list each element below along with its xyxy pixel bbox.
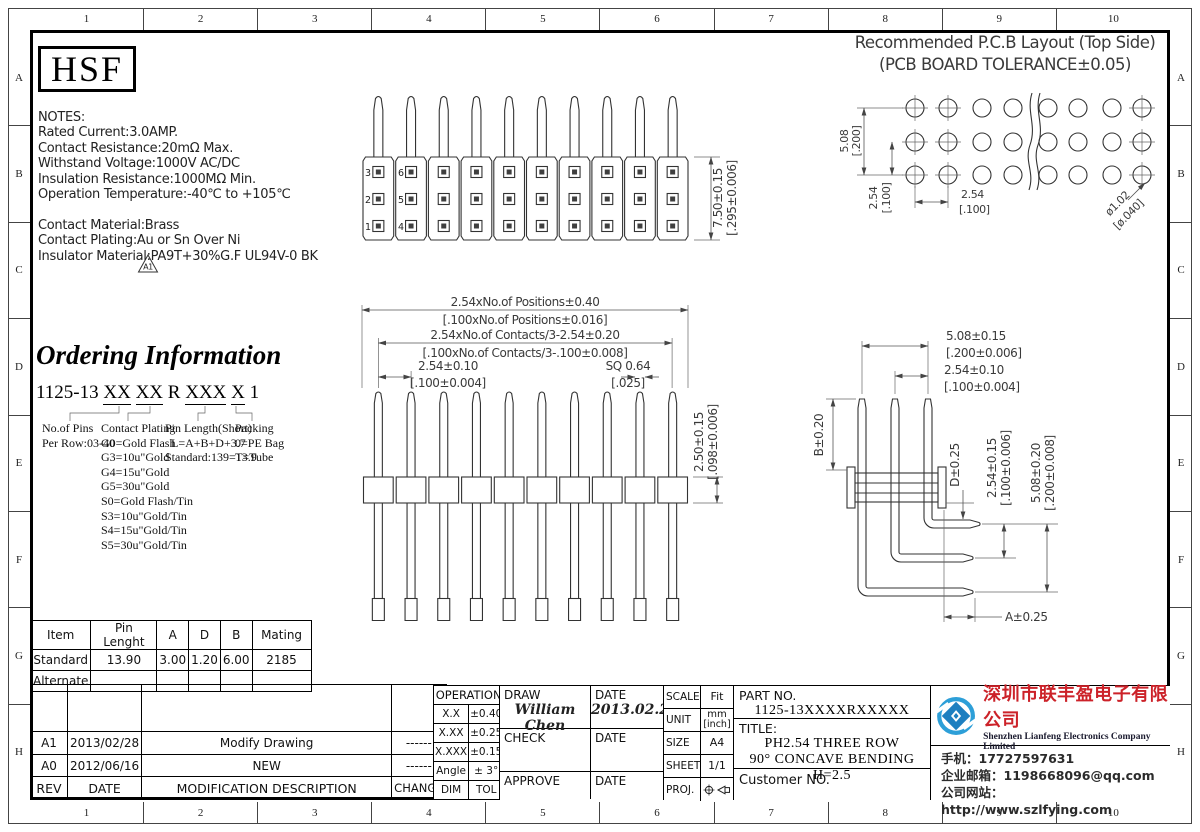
col-header: Mating [252,621,311,650]
tol-dim: X.XXX [434,743,469,762]
ordering-title: Ordering Information [36,340,281,371]
cell: 13.90 [91,650,157,671]
ruler-letter: F [1170,512,1192,608]
col-header: MODIFICATION DESCRIPTION [142,777,392,800]
ruler-num: 3 [258,8,372,30]
ruler-num: 7 [715,8,829,30]
cell [68,685,142,732]
company-name-cn: 深圳市联丰盈电子有限公司 [983,680,1170,732]
scale-label: SCALE [664,686,701,708]
tol-dim: X.XX [434,724,469,743]
part-no-label: PART NO. [734,686,930,703]
draw-date-cell: DATE 2013.02.28 [591,686,663,728]
scale-value: Fit [701,686,733,708]
drawing-sheet: 1 2 3 4 5 6 7 8 9 10 1 2 3 4 5 6 7 8 9 1… [0,0,1200,832]
ruler-num: 4 [372,802,486,824]
params-table: Item Pin Lenght A D B Mating Standard 13… [30,620,312,692]
draw-cell: DRAW William Chen [500,686,591,728]
part-no-value: 1125-13XXXXRXXXXX [734,703,930,719]
ruler-num: 2 [144,8,258,30]
ruler-top: 1 2 3 4 5 6 7 8 9 10 [30,8,1170,30]
phone-value: 17727597631 [979,751,1075,766]
ruler-letter: C [8,223,30,319]
ord-col-line: S5=30u"Gold/Tin [101,538,193,553]
table-row: X.XXX ±0.15 [434,743,504,762]
ruler-num: 7 [715,802,829,824]
cell [142,685,392,732]
scale-row: SCALE Fit [664,686,733,709]
size-row: SIZE A4 [664,732,733,755]
projection-symbol-icon [701,778,733,801]
ruler-num: 3 [258,802,372,824]
pn-seg: 1125-13 [36,382,103,403]
title-line1: PH2.54 THREE ROW [734,736,930,752]
table-row: REV DATE MODIFICATION DESCRIPTION CHANGE [31,777,447,800]
approve-label: APPROVE [500,772,590,788]
rev-desc: NEW [142,755,392,777]
ruler-letter: H [8,705,30,800]
note-line: Insulator Material:PA9T+30%G.F UL94V-0 B… [38,249,318,264]
ruler-num: 6 [600,8,714,30]
web-value: http://www.szlfying.com [941,802,1112,817]
ruler-num: 8 [829,8,943,30]
col-header: Item [31,621,91,650]
ruler-num: 9 [943,8,1057,30]
ruler-letter: B [8,126,30,222]
ordering-part-number: 1125-13 XX XX R XXX X 1 [36,382,259,404]
col-header: B [220,621,252,650]
cell: 2185 [252,650,311,671]
check-date-cell: DATE [591,729,663,771]
pn-seg: 1 [245,382,259,403]
ord-col-line: 0=PE Bag [235,436,284,451]
customer-section: Customer NO. [734,769,930,800]
rev-date: 2013/02/28 [68,732,142,755]
email-value: 1198668096@qq.com [1004,768,1155,783]
note-line: NOTES: [38,110,318,125]
company-website: 公司网站：http://www.szlfying.com [941,784,1170,818]
col-header: REV [31,777,68,800]
table-row: X.X ±0.40 [434,705,504,724]
rev-date: 2012/06/16 [68,755,142,777]
cell: Standard [31,650,91,671]
sheet-label: SHEET [664,755,701,777]
ruler-num: 8 [829,802,943,824]
tol-dim: X.X [434,705,469,724]
pn-seg: XX [103,382,130,405]
check-label: CHECK [500,729,590,745]
ruler-letter: A [1170,30,1192,126]
date-label: DATE [591,772,663,788]
check-cell: CHECK [500,729,591,771]
ruler-num: 1 [30,802,144,824]
ruler-letter: E [1170,416,1192,512]
col-header: Pin Lenght [91,621,157,650]
revision-table: A1 2013/02/28 Modify Drawing ------ A0 2… [30,684,447,800]
title-label: TITLE: [734,719,930,736]
ruler-letter: G [1170,608,1192,704]
meta-block: SCALE Fit UNIT mm [inch] SIZE A4 SHEET 1… [663,685,733,800]
signature-block: DRAW William Chen DATE 2013.02.28 CHECK … [499,685,663,800]
col-header: OPERATION [434,686,504,705]
ruler-left: A B C D E F G H [8,30,30,800]
ruler-right: A B C D E F G H [1170,30,1192,800]
tol-dim: Angle [434,762,469,781]
company-names: 深圳市联丰盈电子有限公司 Shenzhen Lianfeng Electroni… [983,680,1170,752]
table-row [31,685,447,732]
note-line: Operation Temperature:-40℃ to +105℃ [38,187,318,202]
cell: 3.00 [157,650,189,671]
draw-label: DRAW [500,686,590,702]
note-line: Insulation Resistance:1000MΩ Min. [38,172,318,187]
ruler-letter: E [8,416,30,512]
cell: 6.00 [220,650,252,671]
ruler-letter: A [8,30,30,126]
ruler-letter: F [8,512,30,608]
company-email: 企业邮箱：1198668096@qq.com [941,767,1170,784]
ruler-letter: H [1170,705,1192,800]
note-line [38,202,318,217]
ruler-num: 5 [486,802,600,824]
ruler-letter: C [1170,223,1192,319]
sheet-row: SHEET 1/1 [664,755,733,778]
ruler-letter: B [1170,126,1192,222]
ruler-num: 5 [486,8,600,30]
col-header: DATE [68,777,142,800]
note-line: Rated Current:3.0AMP. [38,125,318,140]
date-label: DATE [591,686,663,702]
unit-label: UNIT [664,709,701,731]
ruler-num: 6 [600,802,714,824]
ruler-num: 1 [30,8,144,30]
pn-seg: XX [136,382,163,405]
company-block: 深圳市联丰盈电子有限公司 Shenzhen Lianfeng Electroni… [930,685,1170,800]
proj-label: PROJ. [664,778,701,801]
table-row: Item Pin Lenght A D B Mating [31,621,312,650]
email-label: 企业邮箱： [941,768,1004,783]
ruler-letter: D [8,319,30,415]
col-header: D [189,621,221,650]
rev-id: A0 [31,755,68,777]
pn-seg [131,382,136,403]
ord-col-line: T=Tube [235,450,284,465]
ord-col-line: S3=10u"Gold/Tin [101,509,193,524]
phone-label: 手机： [941,751,979,766]
tolerance-table: OPERATION X.X ±0.40 X.XX ±0.25 X.XXX ±0.… [433,685,504,800]
ruler-letter: G [8,608,30,704]
hsf-logo: HSF [38,46,136,92]
ord-col-line: S4=15u"Gold/Tin [101,523,193,538]
table-row: Angle ± 3° [434,762,504,781]
unit-row: UNIT mm [inch] [664,709,733,732]
ruler-num: 4 [372,8,486,30]
company-logo [935,691,977,741]
company-contacts: 手机：17727597631 企业邮箱：1198668096@qq.com 公司… [931,746,1170,818]
pn-seg: X [231,382,245,405]
title-section: TITLE: PH2.54 THREE ROW 90° CONCAVE BEND… [734,719,930,769]
hsf-logo-text: HSF [51,48,123,90]
rev-desc: Modify Drawing [142,732,392,755]
ruler-num: 2 [144,802,258,824]
table-row: A1 2013/02/28 Modify Drawing ------ [31,732,447,755]
draw-date: 2013.02.28 [591,702,663,718]
approve-date-cell: DATE [591,772,663,799]
proj-row: PROJ. [664,778,733,801]
note-line: Contact Material:Brass [38,218,318,233]
ord-col-line: G5=30u"Gold [101,479,193,494]
ord-col-line: G4=15u"Gold [101,465,193,480]
notes-block: NOTES: Rated Current:3.0AMP. Contact Res… [38,110,318,264]
rev-id: A1 [31,732,68,755]
company-name-en: Shenzhen Lianfeng Electronics Company Li… [983,732,1170,752]
unit-inch: [inch] [703,720,730,730]
company-phone: 手机：17727597631 [941,750,1170,767]
ordering-col-packing: Packing 0=PE Bag T=Tube [235,421,284,465]
sign-row-check: CHECK DATE [500,729,663,772]
col-header: A [157,621,189,650]
ruler-letter: D [1170,319,1192,415]
part-block: PART NO. 1125-13XXXXRXXXXX TITLE: PH2.54… [733,685,930,800]
note-line: Withstand Voltage:1000V AC/DC [38,156,318,171]
ruler-num: 10 [1057,8,1170,30]
sign-row-draw: DRAW William Chen DATE 2013.02.28 [500,686,663,729]
size-value: A4 [701,732,733,754]
pn-seg: R [163,382,185,403]
sheet-value: 1/1 [701,755,733,777]
ord-col-header: Packing [235,421,284,436]
date-label: DATE [591,729,663,745]
table-row: OPERATION [434,686,504,705]
customer-no-label: Customer NO. [734,769,930,788]
sign-row-approve: APPROVE DATE [500,772,663,799]
cell [31,685,68,732]
table-row: A0 2012/06/16 NEW ------ [31,755,447,777]
cell: 1.20 [189,650,221,671]
ord-col-line: S0=Gold Flash/Tin [101,494,193,509]
company-header: 深圳市联丰盈电子有限公司 Shenzhen Lianfeng Electroni… [931,686,1170,746]
tol-dim: DIM [434,781,469,800]
table-row: X.XX ±0.25 [434,724,504,743]
projection-symbol [703,784,731,796]
part-number-section: PART NO. 1125-13XXXXRXXXXX [734,686,930,719]
table-row: DIM TOL [434,781,504,800]
note-line: Contact Plating:Au or Sn Over Ni [38,233,318,248]
unit-value: mm [inch] [701,709,733,731]
table-row: Standard 13.90 3.00 1.20 6.00 2185 [31,650,312,671]
pn-seg: XXX [185,382,226,405]
size-label: SIZE [664,732,701,754]
approve-cell: APPROVE [500,772,591,799]
note-line: Contact Resistance:20mΩ Max. [38,141,318,156]
web-label: 公司网站： [941,785,1004,800]
